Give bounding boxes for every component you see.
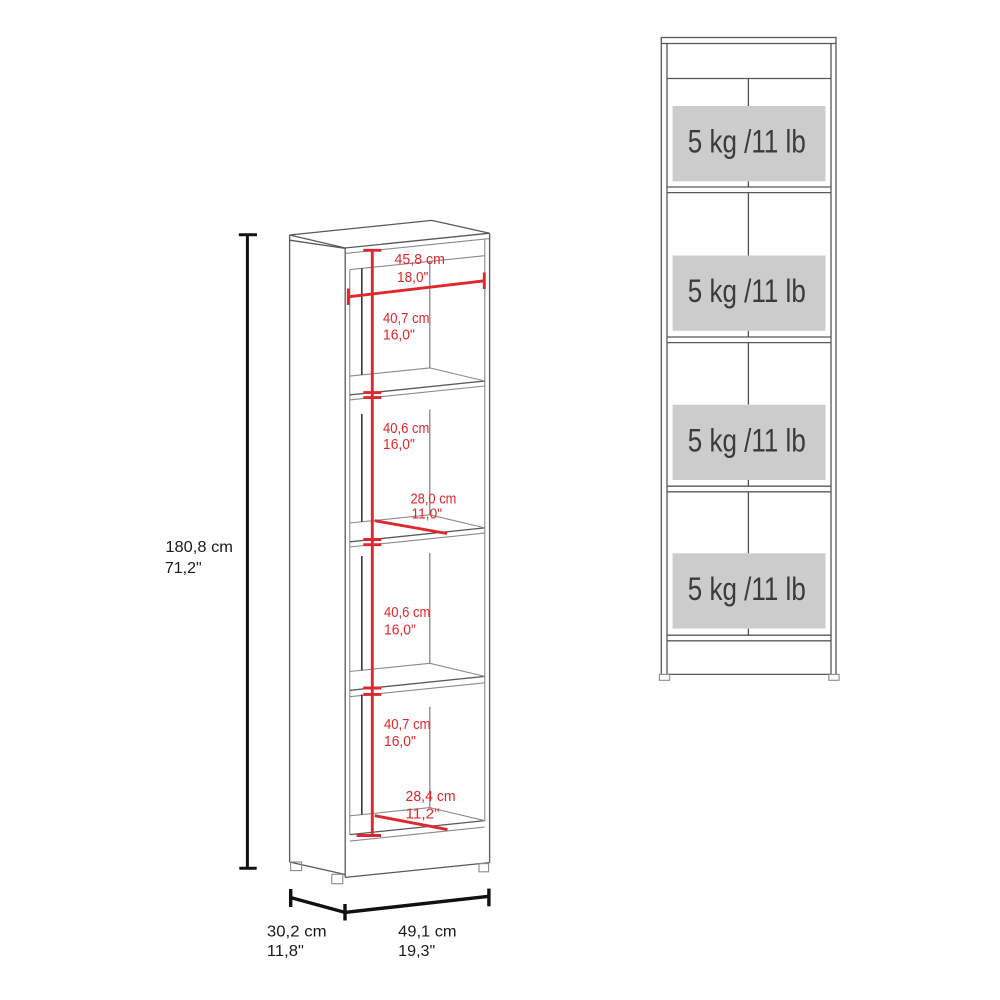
svg-text:30,2 cm: 30,2 cm	[267, 923, 327, 940]
svg-text:11,2": 11,2"	[406, 806, 440, 822]
svg-text:49,1 cm: 49,1 cm	[398, 923, 456, 940]
svg-text:16,0": 16,0"	[384, 623, 416, 639]
svg-text:16,0": 16,0"	[384, 734, 416, 750]
svg-text:40,7 cm: 40,7 cm	[384, 717, 431, 733]
svg-text:16,0": 16,0"	[383, 327, 415, 343]
svg-text:180,8 cm: 180,8 cm	[165, 539, 233, 556]
svg-text:5 kg /11 lb: 5 kg /11 lb	[688, 571, 806, 607]
svg-text:5 kg /11 lb: 5 kg /11 lb	[688, 273, 806, 309]
svg-text:40,6 cm: 40,6 cm	[383, 421, 429, 437]
svg-text:71,2": 71,2"	[165, 560, 202, 577]
svg-text:40,6 cm: 40,6 cm	[384, 605, 430, 621]
svg-text:28,0 cm: 28,0 cm	[411, 491, 457, 507]
svg-text:16,0": 16,0"	[383, 437, 415, 453]
svg-text:18,0": 18,0"	[397, 270, 428, 286]
svg-text:28,4 cm: 28,4 cm	[406, 789, 456, 805]
svg-text:19,3": 19,3"	[398, 943, 435, 960]
svg-text:40,7 cm: 40,7 cm	[383, 311, 430, 327]
svg-text:11,8": 11,8"	[267, 943, 304, 960]
svg-text:5 kg /11 lb: 5 kg /11 lb	[688, 124, 806, 160]
svg-text:5 kg /11 lb: 5 kg /11 lb	[688, 422, 806, 458]
svg-text:45,8 cm: 45,8 cm	[395, 252, 445, 268]
svg-text:11,0": 11,0"	[412, 506, 443, 522]
